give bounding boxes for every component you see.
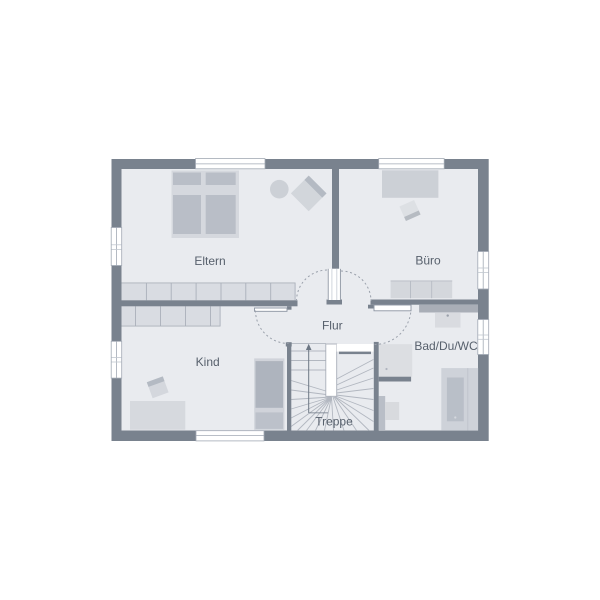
svg-text:Flur: Flur [322,319,343,333]
svg-text:Büro: Büro [415,253,441,267]
svg-text:Kind: Kind [196,355,220,369]
svg-text:Bad/Du/WC: Bad/Du/WC [414,339,478,353]
svg-text:Treppe: Treppe [315,414,353,428]
svg-text:Eltern: Eltern [194,254,225,268]
